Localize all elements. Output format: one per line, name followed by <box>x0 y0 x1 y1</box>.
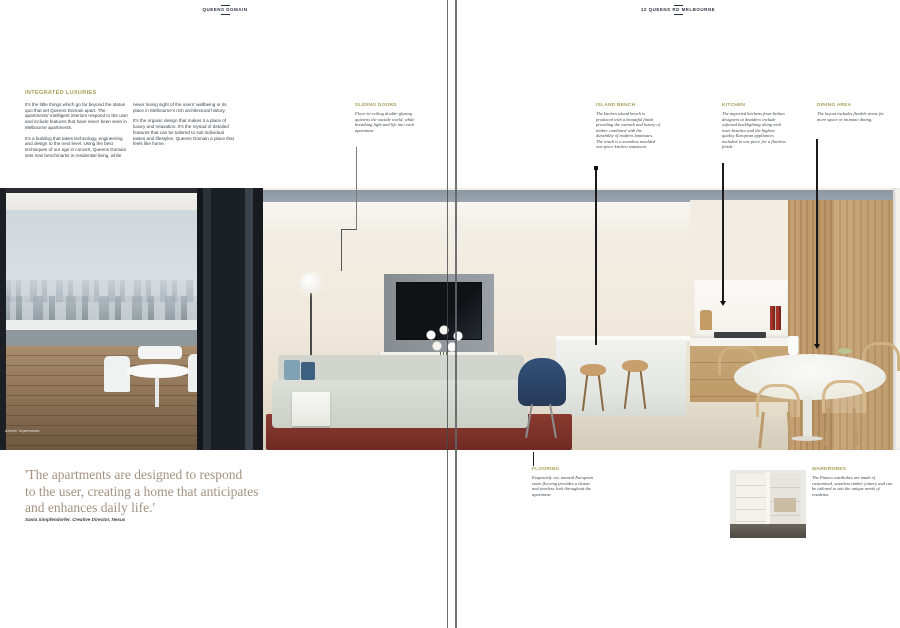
masthead-left: QUEENS DOMAIN <box>185 3 265 16</box>
masthead-left-label: QUEENS DOMAIN <box>185 7 265 12</box>
leader-line-sliding-doors <box>341 229 357 230</box>
wardrobe-shelves <box>736 474 766 524</box>
callout-body: The layout includes flexible areas for m… <box>817 111 893 122</box>
leader-arrow-dining-area <box>814 344 820 349</box>
page-fold-line <box>447 0 448 628</box>
masthead-rule <box>674 5 683 6</box>
intro-heading: INTEGRATED LUXURIES <box>25 90 96 96</box>
callout-body: Floor-to-ceiling double-glazing quietens… <box>355 111 419 133</box>
balcony-shadow-band <box>0 330 197 346</box>
leader-line-island-bench <box>595 170 597 345</box>
callout-heading: KITCHEN <box>722 103 786 108</box>
folded-linen <box>774 498 796 512</box>
intro-paragraph: never losing sight of the users' wellbei… <box>133 102 237 113</box>
leader-line-dining-area <box>816 139 818 344</box>
navy-armchair <box>518 358 566 406</box>
photo-caption: Artists' Impression <box>5 429 40 433</box>
leader-line-flooring <box>533 452 534 466</box>
kitchen-upper-wall <box>690 200 788 280</box>
white-flowers <box>422 324 470 358</box>
window-head-frame <box>0 188 197 193</box>
masthead-right-label: 12 QUEENS RD MELBOURNE <box>633 7 723 12</box>
intro-paragraph: It's the organic design that makes it a … <box>133 118 237 147</box>
leader-arrow-kitchen <box>720 301 726 306</box>
callout-heading: FLOORING <box>532 467 598 472</box>
outdoor-table-leg <box>155 377 159 407</box>
callout-dining-area: DINING AREA The layout includes flexible… <box>817 103 893 122</box>
masthead-rule <box>674 14 683 15</box>
wall-edge <box>893 188 900 450</box>
intro-column-2: never losing sight of the users' wellbei… <box>133 102 237 152</box>
callout-kitchen: KITCHEN The imported kitchens from Itali… <box>722 103 786 150</box>
bar-stool <box>622 360 648 372</box>
intro-paragraph: It's the little things which go far beyo… <box>25 102 129 131</box>
callout-heading: ISLAND BENCH <box>596 103 660 108</box>
masthead-right: 12 QUEENS RD MELBOURNE <box>633 3 723 16</box>
masthead-rule <box>221 14 230 15</box>
bar-stool <box>580 364 606 376</box>
callout-heading: DINING AREA <box>817 103 893 108</box>
pull-quote-line: 'The apartments are designed to respond <box>25 467 258 484</box>
sofa-cushion <box>284 360 300 380</box>
balustrade <box>0 320 197 330</box>
page-gutter-line <box>455 0 457 628</box>
interior-photo: Artists' Impression <box>0 188 900 450</box>
utensil-jar <box>700 310 712 330</box>
water-pitcher <box>788 336 798 355</box>
white-side-table <box>292 392 330 426</box>
sofa-cushion <box>301 362 315 380</box>
intro-paragraph: It's a building that takes technology, e… <box>25 136 129 159</box>
callout-heading: SLIDING DOORS <box>355 103 419 108</box>
city-haze <box>0 274 197 324</box>
callout-heading: WARDROBES <box>812 467 894 472</box>
island-bench <box>556 340 686 416</box>
callout-body: The Pianca wardrobes are made of customi… <box>812 475 894 497</box>
pull-quote: 'The apartments are designed to respond … <box>25 467 258 517</box>
pull-quote-line: and enhances daily life.' <box>25 500 258 517</box>
callout-body: The kitchen island bench is produced wit… <box>596 111 660 150</box>
intro-column-1: It's the little things which go far beyo… <box>25 102 129 163</box>
outdoor-table <box>126 364 190 378</box>
kitchen-benchtop <box>690 338 788 346</box>
leader-line-kitchen <box>722 163 724 301</box>
table-pedestal <box>803 396 812 438</box>
window-side-frame <box>0 188 6 450</box>
sliding-door-panel <box>197 188 263 450</box>
quote-attribution: Sania Simpfendorfer. Creative Director, … <box>25 517 125 522</box>
masthead-rule <box>221 5 230 6</box>
wardrobe-floor <box>730 524 806 538</box>
table-foot <box>791 436 823 441</box>
callout-island-bench: ISLAND BENCH The kitchen island bench is… <box>596 103 660 150</box>
leader-line-sliding-doors <box>356 147 357 230</box>
callout-body: The imported kitchens from Italian desig… <box>722 111 786 150</box>
wardrobe-photo <box>730 470 806 538</box>
fruit-bowl <box>838 348 852 354</box>
callout-wardrobes: WARDROBES The Pianca wardrobes are made … <box>812 467 894 497</box>
outdoor-chair <box>104 356 130 392</box>
outdoor-chair <box>138 346 182 359</box>
wardrobe-divider <box>766 472 770 526</box>
callout-sliding-doors: SLIDING DOORS Floor-to-ceiling double-gl… <box>355 103 419 133</box>
cookbooks <box>770 306 781 330</box>
callout-flooring: FLOORING Exquisitely cut, natural Europe… <box>532 467 598 497</box>
leader-line-sliding-doors <box>341 229 342 271</box>
callout-body: Exquisitely cut, natural European stone … <box>532 475 598 497</box>
magazine-spread: QUEENS DOMAIN 12 QUEENS RD MELBOURNE INT… <box>0 0 900 628</box>
timber-deck <box>0 346 197 450</box>
pull-quote-line: to the user, creating a home that antici… <box>25 484 258 501</box>
floor-lamp-globe <box>301 273 321 293</box>
